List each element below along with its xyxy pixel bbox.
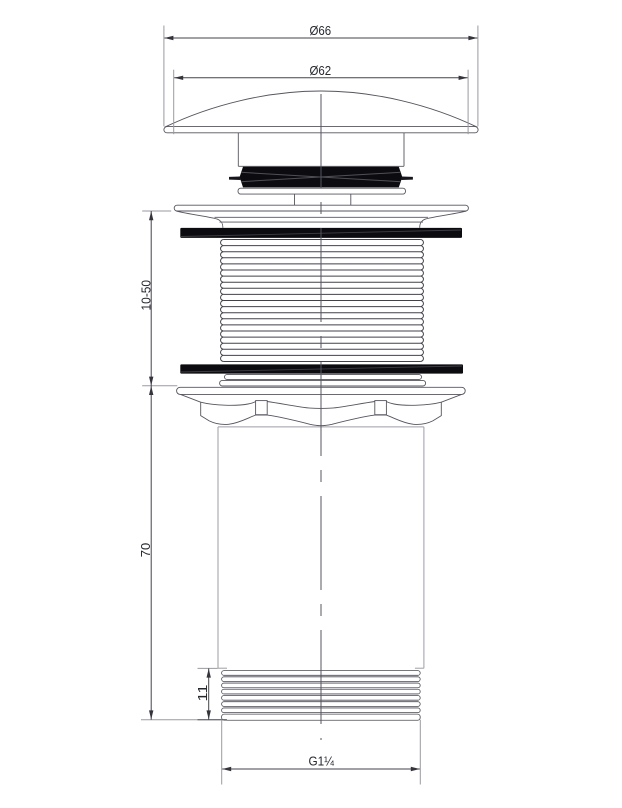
svg-text:Ø62: Ø62: [309, 63, 331, 78]
svg-text:70: 70: [138, 543, 153, 557]
svg-text:10-50: 10-50: [139, 280, 154, 311]
svg-text:G1¼: G1¼: [308, 754, 334, 769]
svg-text:Ø66: Ø66: [309, 23, 331, 38]
svg-text:11: 11: [195, 685, 210, 702]
